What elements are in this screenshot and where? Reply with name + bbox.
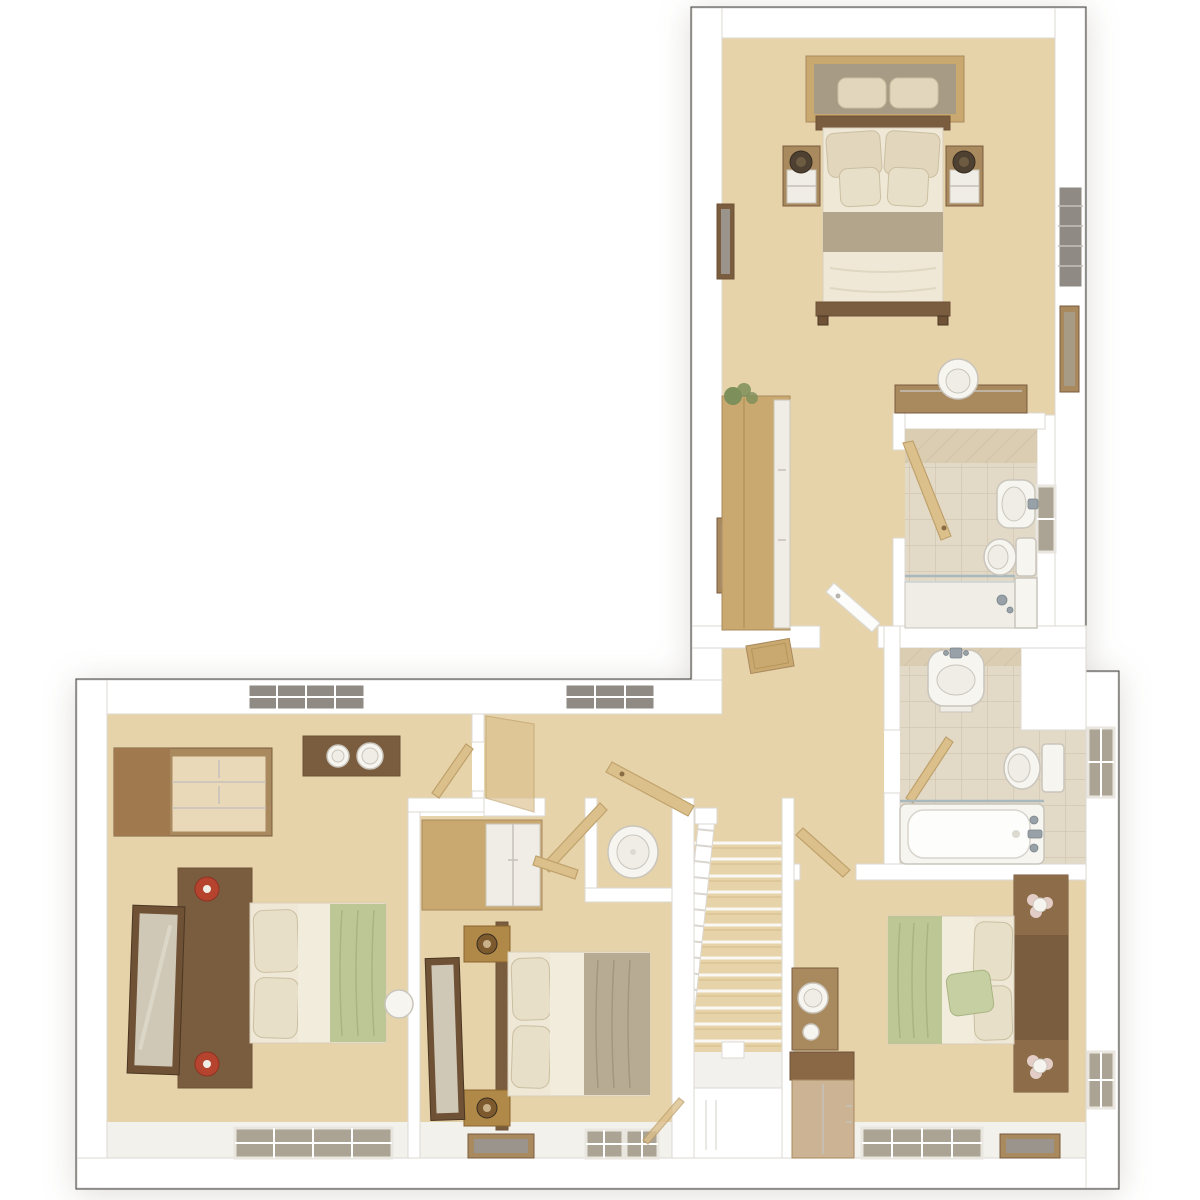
bedroom2-double-bed	[888, 916, 1014, 1044]
bedroom2-cabinet	[790, 1052, 854, 1158]
master-bedroom-window-blinds	[1058, 186, 1083, 288]
master-west-wall-picture-1	[717, 204, 734, 279]
landing-floor-junction	[722, 648, 884, 714]
bathroom-basin	[928, 648, 984, 712]
picture-frame-on-floor	[468, 1134, 534, 1158]
green-duvet	[330, 904, 386, 1042]
green-duvet	[888, 916, 942, 1044]
ensuite-window	[1037, 486, 1055, 552]
picture-frame-on-floor	[1000, 1134, 1060, 1158]
ensuite-basin	[997, 480, 1038, 528]
bathtub	[900, 801, 1044, 864]
floor-plan-render	[0, 0, 1200, 1200]
airing-cupboard-tank	[608, 826, 658, 878]
mirror-above-bed	[806, 56, 964, 122]
headboard-wall-unit	[1014, 875, 1068, 1092]
footboard	[816, 302, 950, 316]
ensuite-tiled-wall	[905, 429, 1037, 463]
chest-of-drawers	[114, 748, 272, 836]
bedroom2-side-window	[1088, 1052, 1114, 1108]
bedroom2-bottom-window	[862, 1128, 982, 1158]
desk-chair	[938, 359, 978, 399]
dressing-table	[792, 968, 838, 1050]
bath-taps	[1030, 816, 1038, 824]
bedroom3-top-window	[248, 684, 365, 710]
bedside-table-left	[783, 146, 820, 206]
master-double-bed	[816, 116, 950, 325]
master-east-wall-picture	[1060, 306, 1079, 392]
bedroom3-bottom-window	[235, 1128, 392, 1158]
leaning-mirror	[425, 957, 465, 1120]
basin-tap	[1028, 499, 1038, 509]
newel-post-bottom	[722, 1042, 744, 1058]
shower-mixer	[997, 595, 1007, 605]
leaning-mirror	[127, 905, 185, 1075]
bathroom-window	[1088, 728, 1114, 797]
taupe-duvet	[584, 953, 650, 1095]
throw-blanket	[823, 212, 943, 252]
dressing-area-wardrobe	[722, 396, 790, 630]
ensuite-shower	[905, 576, 1037, 628]
wall-shelf-with-bowls	[303, 736, 400, 776]
landing-window	[565, 684, 655, 710]
ensuite-toilet	[984, 538, 1036, 576]
accent-pillow	[945, 969, 994, 1017]
newel-post-top	[695, 808, 717, 824]
bedroom-stool	[385, 990, 413, 1018]
basin-tap	[950, 648, 962, 658]
bedside-table-right	[946, 146, 983, 206]
